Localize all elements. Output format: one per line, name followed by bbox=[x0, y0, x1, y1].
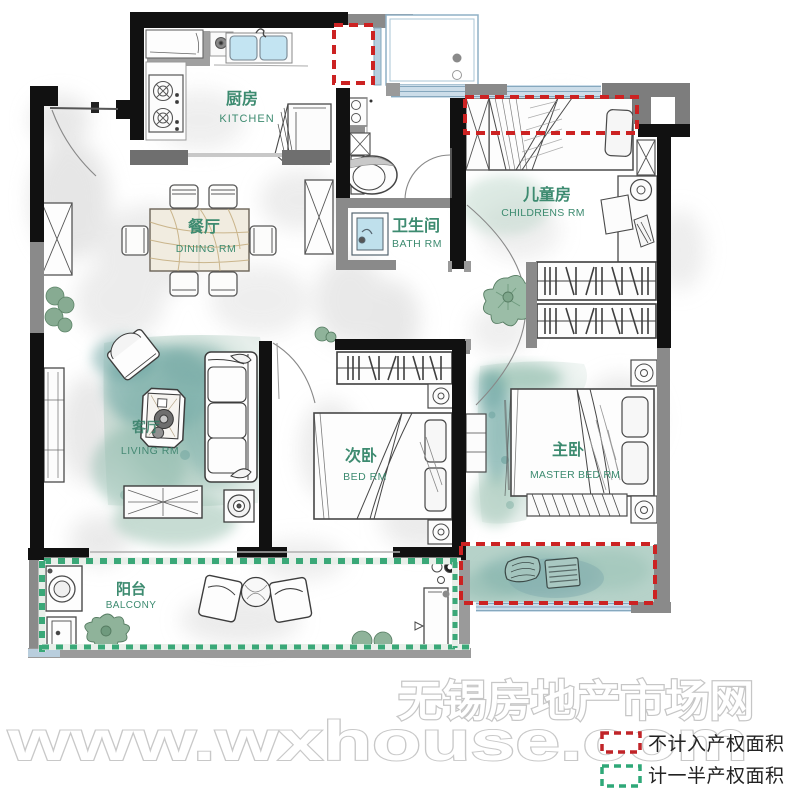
svg-text:厨房: 厨房 bbox=[226, 89, 258, 108]
svg-text:KITCHEN: KITCHEN bbox=[219, 113, 274, 125]
svg-text:次卧: 次卧 bbox=[345, 446, 377, 465]
svg-text:CHILDRENS RM: CHILDRENS RM bbox=[501, 207, 585, 219]
svg-text:儿童房: 儿童房 bbox=[522, 185, 571, 204]
svg-text:不计入产权面积: 不计入产权面积 bbox=[648, 733, 785, 755]
svg-text:BALCONY: BALCONY bbox=[106, 600, 157, 611]
svg-text:卫生间: 卫生间 bbox=[392, 216, 440, 235]
svg-text:MASTER BED RM: MASTER BED RM bbox=[530, 469, 620, 481]
svg-text:客厅: 客厅 bbox=[131, 419, 160, 435]
svg-text:主卧: 主卧 bbox=[552, 440, 584, 459]
svg-text:餐厅: 餐厅 bbox=[187, 217, 220, 236]
svg-text:BATH RM: BATH RM bbox=[392, 238, 442, 250]
svg-text:DINING RM: DINING RM bbox=[176, 243, 237, 255]
svg-text:BED RM: BED RM bbox=[343, 471, 387, 483]
svg-text:阳台: 阳台 bbox=[116, 580, 146, 598]
svg-text:计一半产权面积: 计一半产权面积 bbox=[648, 765, 785, 787]
svg-text:LIVING RM: LIVING RM bbox=[121, 445, 179, 457]
